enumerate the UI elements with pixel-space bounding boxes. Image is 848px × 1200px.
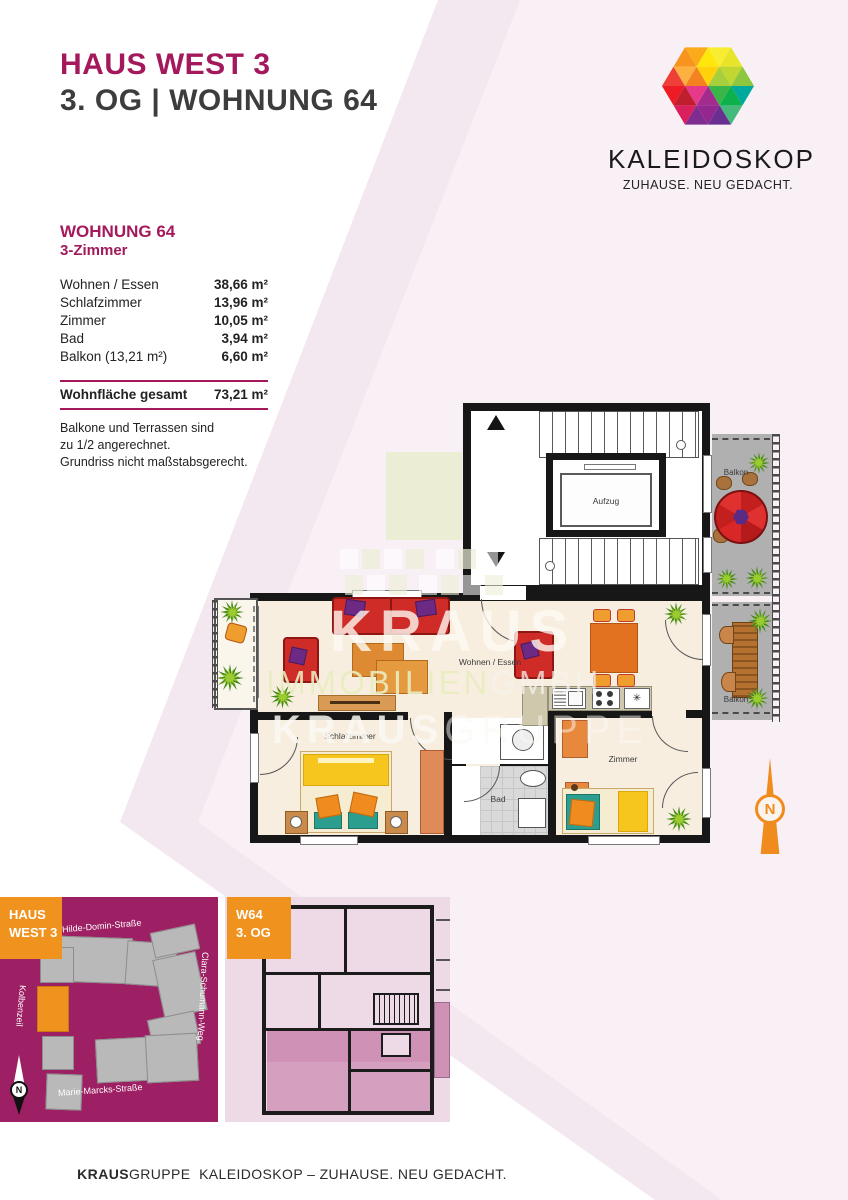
bath-shower bbox=[518, 798, 546, 828]
mini-elevator bbox=[381, 1033, 411, 1057]
sideboard-tv bbox=[330, 701, 380, 704]
arrow-up-icon bbox=[487, 415, 505, 430]
watermark-square bbox=[436, 549, 454, 569]
loggia-threshold bbox=[253, 606, 255, 702]
sofa-cushion bbox=[415, 599, 437, 618]
unit-map-label-line: 3. OG bbox=[236, 924, 291, 942]
sofa-divider bbox=[390, 599, 392, 633]
mini-window-tick bbox=[436, 989, 450, 991]
site-map-label-line: HAUS bbox=[9, 906, 62, 924]
balcony-chair bbox=[719, 626, 734, 644]
map-building-highlight bbox=[37, 986, 69, 1032]
plant-icon bbox=[216, 664, 244, 692]
street-name-left: Kolbenzeil bbox=[14, 985, 28, 1027]
sofa-cushion bbox=[344, 599, 366, 618]
bed-pillow bbox=[569, 799, 596, 827]
plant-icon bbox=[270, 684, 295, 709]
staircase-lower bbox=[539, 538, 699, 585]
wall-segment bbox=[258, 712, 408, 720]
plant-icon bbox=[666, 806, 692, 832]
elevator-label: Aufzug bbox=[560, 496, 652, 506]
mini-wall bbox=[318, 972, 321, 1030]
room-label: Zimmer bbox=[598, 754, 648, 764]
bath-label: Bad bbox=[478, 794, 518, 804]
watermark-square bbox=[485, 575, 503, 595]
unit-map: W64 3. OG bbox=[225, 897, 450, 1122]
mini-window-tick bbox=[436, 959, 450, 961]
kitchen-sink-basin bbox=[568, 691, 583, 706]
stove-burner bbox=[596, 691, 602, 697]
bedroom-label: Schlafzimmer bbox=[310, 731, 390, 741]
balcony-parapet bbox=[712, 592, 770, 594]
wall-segment bbox=[548, 714, 556, 843]
bed-blanket bbox=[618, 791, 648, 832]
mini-wall bbox=[266, 972, 432, 975]
site-map-label: HAUS WEST 3 bbox=[0, 897, 62, 959]
stove-burner bbox=[607, 691, 613, 697]
plant-icon bbox=[745, 566, 769, 590]
mini-wall bbox=[348, 1069, 432, 1072]
balcony-railing bbox=[772, 434, 780, 722]
map-building bbox=[145, 1033, 199, 1084]
site-map-compass: N bbox=[8, 1055, 30, 1115]
window bbox=[702, 768, 711, 818]
appliance-symbol: ✳ bbox=[633, 693, 641, 704]
window bbox=[588, 836, 660, 845]
mini-window-tick bbox=[436, 919, 450, 921]
site-map-label-line: WEST 3 bbox=[9, 924, 62, 942]
desk-lamp bbox=[571, 784, 578, 791]
bed-pillow bbox=[315, 794, 341, 819]
unit-map-label: W64 3. OG bbox=[227, 897, 291, 959]
window bbox=[703, 537, 712, 573]
armchair-cushion bbox=[289, 647, 308, 666]
map-building bbox=[95, 1037, 151, 1084]
north-arrow-circle: N bbox=[755, 794, 785, 824]
balcony-upper-label: Balkon bbox=[714, 468, 758, 477]
watermark-square bbox=[419, 575, 437, 595]
stair-landing-circle bbox=[676, 440, 686, 450]
watermark-square bbox=[362, 549, 380, 569]
site-map: HAUS WEST 3 Hilde-Domin-Straße Clara-Sch… bbox=[0, 897, 218, 1122]
compass-letter: N bbox=[16, 1085, 23, 1095]
map-building bbox=[42, 1036, 74, 1070]
bed-blanket-fold bbox=[318, 758, 374, 763]
street-name-top: Hilde-Domin-Straße bbox=[62, 918, 142, 935]
window bbox=[250, 733, 259, 783]
watermark-square bbox=[384, 549, 402, 569]
mini-wall bbox=[344, 905, 347, 975]
balcony-chair bbox=[721, 672, 736, 692]
kitchen-drainer bbox=[554, 691, 566, 706]
dining-chair bbox=[593, 609, 611, 622]
window bbox=[703, 455, 712, 513]
watermark-square bbox=[480, 549, 498, 569]
mini-staircase bbox=[373, 993, 419, 1025]
bath-sink bbox=[520, 770, 546, 787]
staircase-upper bbox=[539, 411, 699, 458]
watermark-square bbox=[340, 549, 358, 569]
window bbox=[702, 614, 711, 666]
dining-chair bbox=[617, 674, 635, 687]
watermark-square bbox=[345, 575, 363, 595]
wardrobe bbox=[562, 720, 588, 758]
unit-balcony-highlight bbox=[434, 1002, 450, 1078]
watermark-square bbox=[389, 575, 407, 595]
watermark-square bbox=[441, 575, 459, 595]
watermark-square bbox=[406, 549, 424, 569]
unit-map-label-line: W64 bbox=[236, 906, 291, 924]
north-letter: N bbox=[765, 801, 776, 818]
wall-segment bbox=[548, 710, 652, 718]
wardrobe bbox=[420, 750, 444, 834]
watermark-square bbox=[458, 549, 476, 569]
nightstand-lamp bbox=[290, 816, 302, 828]
dining-chair bbox=[593, 674, 611, 687]
balcony-parapet bbox=[712, 438, 770, 440]
brochure-page: HAUS WEST 3 3. OG | WOHNUNG 64 KALEIDOSK… bbox=[0, 0, 848, 1200]
wall-segment bbox=[686, 710, 702, 718]
dining-chair bbox=[617, 609, 635, 622]
kitchen-counter bbox=[522, 686, 548, 726]
balcony-lower-label: Balkon bbox=[714, 695, 758, 704]
plant-icon bbox=[748, 608, 772, 634]
plant-icon bbox=[664, 602, 688, 626]
window bbox=[300, 836, 358, 845]
plant-icon bbox=[716, 568, 738, 590]
stove-burner bbox=[607, 700, 613, 706]
mini-wall bbox=[430, 905, 434, 1115]
kitchen-appliance: ✳ bbox=[624, 688, 650, 709]
north-arrow: N bbox=[752, 758, 788, 854]
living-label: Wohnen / Essen bbox=[445, 657, 535, 667]
nightstand-lamp bbox=[390, 816, 402, 828]
balcony-parapet bbox=[712, 712, 770, 714]
compass-circle: N bbox=[10, 1081, 28, 1099]
stair-landing-circle bbox=[545, 561, 555, 571]
stove-burner bbox=[596, 700, 602, 706]
elevator-indicator bbox=[584, 464, 636, 470]
watermark-square bbox=[367, 575, 385, 595]
plant-icon bbox=[220, 600, 244, 624]
dining-table bbox=[590, 623, 638, 673]
washing-machine-door bbox=[512, 729, 534, 751]
watermark-square bbox=[463, 575, 481, 595]
coffee-table bbox=[376, 660, 428, 694]
balcony-chair bbox=[716, 476, 732, 490]
balcony-parapet bbox=[712, 604, 770, 606]
